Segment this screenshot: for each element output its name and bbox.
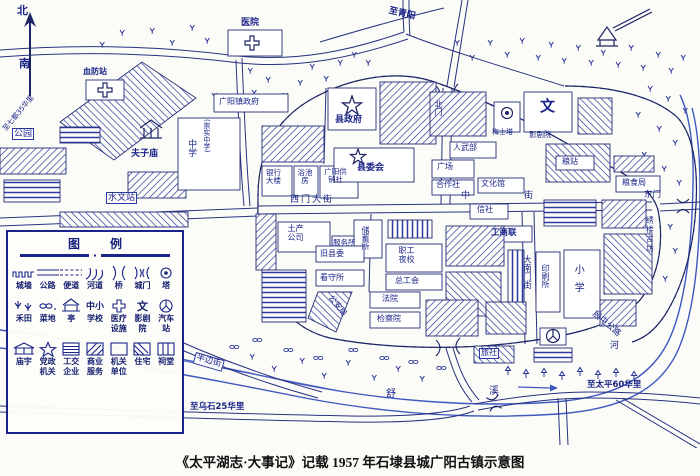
label-detention: 看守所 (320, 274, 344, 283)
label-coop: 合作社 (436, 181, 460, 190)
label-fuzimiao: 夫子庙 (131, 149, 158, 159)
legend-item-highway: 公路 (36, 264, 60, 290)
residence-square-icon (130, 340, 154, 357)
label-north: 北 (17, 5, 28, 17)
label-federation: 工商联 (491, 229, 517, 239)
city-gate-icon (130, 264, 154, 281)
legend-item-gate: 城门 (131, 264, 155, 290)
pavilion-icon (59, 297, 83, 314)
legend-item-hall: 祠堂 (154, 340, 178, 376)
label-supply-coop: 广阳供销社 (323, 168, 348, 185)
legend-item-path: 便道 (59, 264, 83, 290)
label-to-taiping: 至太平60华里 (587, 381, 641, 391)
label-grain-station: 粮站 (562, 158, 578, 167)
label-town-gov: 广阳镇政府 (219, 98, 259, 107)
legend-box: 图例 · 城墙 公路 便道 河道 桥 城门 塔 (6, 230, 184, 434)
legend-item-bridge: 桥 (107, 264, 131, 290)
label-service-office: 服务所 (333, 239, 356, 247)
label-union: 总工会 (395, 277, 419, 286)
label-printing: 印刷所 (540, 264, 549, 288)
legend-item-paddy: 禾田 (12, 297, 36, 333)
label-mid-street: 中街 (461, 191, 587, 201)
legend-row-2: 禾田 菜地 亭 中小 学校 医疗 设施 文 影剧 院 汽车 站 (12, 297, 178, 333)
label-east-gate: 东门 (644, 191, 661, 201)
temple-icon (12, 340, 36, 357)
legend-item-office: 机关 单位 (107, 340, 131, 376)
label-to-wushi: 至乌石25华里 (190, 403, 244, 413)
legend-item-party-gov: 党政 机关 (36, 340, 60, 376)
label-bathhouse: 浴池房 (297, 169, 313, 186)
office-square-icon (107, 340, 131, 357)
legend-item-vegetable: 菜地 (36, 297, 60, 333)
north-arrow-icon (24, 12, 36, 96)
legend-row-3: 庙宇 党政 机关 工交 企业 商业 服务 机关 单位 住宅 祠堂 (12, 340, 178, 376)
tree-marks (506, 367, 637, 381)
label-west-street: 西门大街 (290, 195, 334, 205)
label-culture-center: 文化馆 (481, 180, 505, 189)
label-cinema: 影剧院 (529, 131, 552, 139)
label-court: 法院 (382, 295, 398, 304)
ancestral-hall-square-icon (154, 340, 178, 357)
label-credit-coop: 信社 (477, 206, 493, 215)
highway-icon (36, 264, 60, 281)
label-hostel: 旅社 (479, 348, 499, 359)
label-bank: 银行大楼 (265, 169, 282, 186)
bridge-icon (107, 264, 131, 281)
label-river-xi: 溪 (489, 386, 499, 397)
label-old-committee: 旧县委 (320, 250, 344, 259)
legend-item-temple: 庙宇 (12, 340, 36, 376)
label-night-school: 职工夜校 (398, 247, 415, 265)
label-river-he: 河 (610, 341, 619, 351)
label-river-shu: 舒 (386, 389, 396, 400)
label-savings: 储蓄所 (360, 226, 369, 250)
legend-item-cinema: 文 影剧 院 (131, 297, 155, 333)
label-primary-school: 小学 (572, 264, 583, 300)
school-icon: 中小 (86, 297, 104, 314)
map-page: 北 南 至七都35华里 血防站 医院 至青阳 公园 水文站 夫子庙 中学 (崇实… (0, 0, 700, 476)
label-hydro-station: 水文站 (106, 192, 137, 204)
river-icon (83, 264, 107, 281)
bus-station-icon (154, 297, 178, 314)
label-south: 南 (19, 58, 30, 70)
label-plaza: 广场 (437, 163, 453, 172)
label-chongshi: (崇实中学) (202, 119, 210, 152)
vegetable-plot-icon (36, 297, 60, 314)
label-tuchan-company: 土产公司 (287, 225, 304, 243)
label-xuefang: 血防站 (83, 68, 107, 77)
star-icon (36, 340, 60, 357)
legend-item-river: 河道 (83, 264, 107, 290)
legend-divider: · (20, 254, 170, 257)
label-south-street: 大南门街 (521, 255, 531, 289)
city-wall-icon (12, 264, 36, 281)
label-pagoda: 梅士塔 (492, 129, 513, 137)
label-xiulou: 绣楼古坊 (645, 216, 653, 254)
legend-item-pavilion: 亭 (59, 297, 83, 333)
medical-cross-icon (107, 297, 131, 314)
legend-item-industry: 工交 企业 (59, 340, 83, 376)
map-caption: 《太平湖志·大事记》记载 1957 年石埭县城广阳古镇示意图 (0, 451, 700, 471)
paddy-icon (12, 297, 36, 314)
footpath-icon (59, 264, 83, 281)
legend-item-residence: 住宅 (131, 340, 155, 376)
legend-item-bus: 汽车 站 (154, 297, 178, 333)
label-middle-school: 中学 (186, 139, 196, 157)
legend-item-commerce: 商业 服务 (83, 340, 107, 376)
cinema-icon: 文 (137, 297, 148, 314)
label-procuratorate: 检察院 (377, 315, 401, 324)
tower-icon (154, 264, 178, 281)
legend-item-wall: 城墙 (12, 264, 36, 290)
label-grain-bureau: 粮食局 (622, 179, 646, 188)
label-hospital: 医院 (241, 18, 259, 28)
vegetable-marks (230, 338, 446, 369)
legend-item-school: 中小 学校 (83, 297, 107, 333)
label-north-gate: 北门 (433, 100, 442, 116)
label-armed-dept: 人武部 (453, 144, 477, 153)
legend-item-tower: 塔 (154, 264, 178, 290)
label-county-comm: 县委会 (357, 163, 384, 173)
label-wen-glyph: 文 (540, 98, 555, 115)
industry-square-icon (59, 340, 83, 357)
legend-item-medical: 医疗 设施 (107, 297, 131, 333)
commerce-square-icon (83, 340, 107, 357)
label-county-gov: 县政府 (335, 115, 362, 125)
pavilion-icon (596, 9, 652, 46)
legend-row-1: 城墙 公路 便道 河道 桥 城门 塔 (12, 264, 178, 290)
label-park: 公园 (12, 128, 34, 140)
bridge-icon-east (677, 199, 689, 213)
